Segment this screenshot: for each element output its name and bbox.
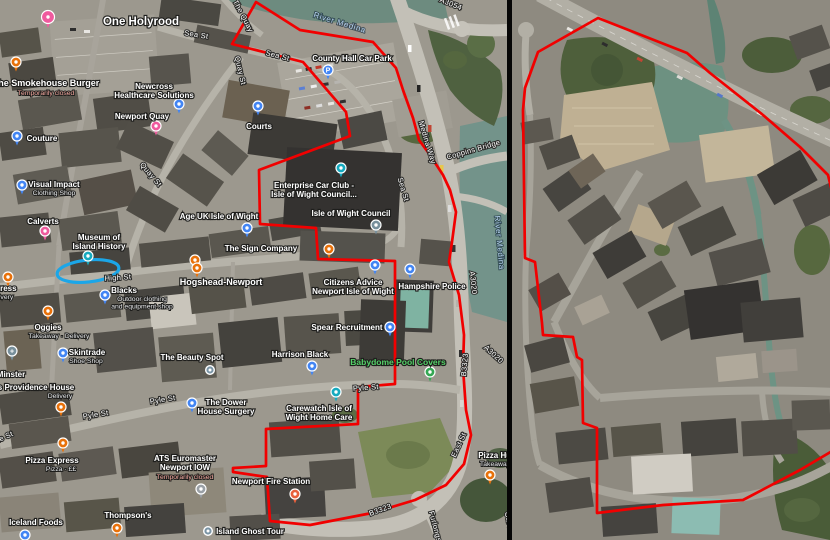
street-label: Quay St bbox=[233, 55, 248, 86]
street-label: Quay St bbox=[138, 160, 164, 189]
poi-closed-label: Temporarily closed bbox=[157, 474, 214, 481]
poi-label: The Dower bbox=[206, 398, 247, 407]
poi-harrison-black: Harrison Black bbox=[272, 350, 329, 376]
poi-pizza-hut: Pizza HutTakeaway bbox=[478, 451, 507, 485]
thompsons-pin[interactable] bbox=[112, 523, 122, 538]
poi-label: Calverts bbox=[27, 217, 59, 226]
visual-impact-pin[interactable] bbox=[17, 180, 27, 195]
poi-label: Citizens Advice bbox=[324, 278, 383, 287]
street-label: B3323 bbox=[459, 353, 470, 377]
hampshire-police-pin[interactable] bbox=[405, 264, 415, 279]
poi-label: Harrison Black bbox=[272, 350, 329, 359]
left-map-annotations: River MedinaRiver MedinaThe QuaySea StSe… bbox=[0, 0, 507, 540]
iow-council-pin[interactable] bbox=[371, 220, 381, 235]
poi-iow-council: Isle of Wight Council bbox=[311, 209, 390, 235]
poi-sublabel: Takeaway · Delivery bbox=[29, 333, 90, 340]
calverts-pin[interactable] bbox=[40, 226, 50, 241]
poi-county-hall-car-park: PCounty Hall Car Park bbox=[312, 54, 392, 80]
street-label: A3054 bbox=[439, 0, 464, 12]
poi-label: Newport IOW bbox=[160, 463, 211, 472]
poi-label: Island History bbox=[73, 242, 126, 251]
poi-label: Iceland Foods bbox=[9, 518, 63, 527]
poi-age-uk: Age UK Isle of Wight bbox=[180, 212, 259, 238]
blacks-pin[interactable] bbox=[100, 290, 110, 305]
boundary-outline bbox=[232, 2, 471, 525]
poi-label: House Surgery bbox=[198, 407, 255, 416]
oggies-pin[interactable] bbox=[43, 306, 53, 321]
poi-couture: Couture bbox=[12, 131, 58, 146]
poi-pizza-express: Pizza ExpressPizza · ££ bbox=[25, 438, 79, 473]
poi-thompsons: Thompson's bbox=[104, 511, 152, 538]
poi-courts: Courts bbox=[246, 101, 272, 131]
poi-hogshead-newport: Hogshead-Newport bbox=[180, 263, 263, 287]
poi-label: Pizza Express bbox=[25, 456, 79, 465]
poi-sublabel: and equipment shop bbox=[111, 304, 173, 311]
poi-label: Oggies bbox=[34, 323, 62, 332]
poi-label: One Holyrood bbox=[103, 16, 179, 28]
poi-label: The Beauty Spot bbox=[160, 353, 223, 362]
water-label: River Medina bbox=[312, 10, 367, 34]
poi-calverts: Calverts bbox=[27, 217, 59, 241]
poi-citizens-advice: Citizens AdviceNewport Isle of Wight bbox=[312, 260, 394, 296]
right-map-panel[interactable] bbox=[512, 0, 830, 540]
poi-label: Express bbox=[0, 284, 17, 293]
poi-providence-house: s Providence HouseDelivery bbox=[0, 383, 75, 417]
street-label: Pyle St bbox=[0, 429, 15, 448]
babydome-pool-covers-pin[interactable] bbox=[425, 367, 435, 382]
poi-newport-quay: Newport Quay bbox=[115, 112, 170, 136]
poi-beauty-spot: The Beauty Spot bbox=[160, 353, 223, 374]
street-label: Coppins Bridge bbox=[445, 138, 501, 162]
poi-label: The Sign Company bbox=[225, 244, 298, 253]
enterprise-car-club-pin[interactable] bbox=[336, 163, 346, 178]
poi-sublabel: Delivery bbox=[0, 294, 14, 301]
street-label: A3020 bbox=[468, 271, 479, 295]
dower-house-surgery-pin[interactable] bbox=[187, 398, 197, 413]
poi-label: Pizza Hut bbox=[478, 451, 507, 460]
poi-label: Blacks bbox=[111, 286, 137, 295]
poi-spear-recruitment: Spear Recruitment bbox=[311, 322, 395, 337]
poi-babydome-pool-covers: Babydome Pool Covers bbox=[350, 357, 446, 382]
poi-label: Hampshire Police bbox=[398, 282, 466, 291]
courts-pin[interactable] bbox=[253, 101, 263, 116]
right-map-annotations bbox=[512, 0, 830, 540]
pizza-express-pin[interactable] bbox=[58, 438, 68, 453]
poi-label: Isle of Wight Council... bbox=[271, 190, 357, 199]
street-label: Sea St bbox=[265, 48, 291, 63]
poi-one-holyrood: One Holyrood bbox=[42, 11, 180, 29]
street-label: Furlongs bbox=[427, 510, 444, 540]
age-uk-pin[interactable] bbox=[242, 223, 252, 238]
carewatch-pin[interactable] bbox=[331, 387, 341, 402]
poi-hampshire-police: Hampshire Police bbox=[398, 264, 466, 291]
poi-label: Minster bbox=[0, 370, 25, 379]
poi-express: ExpressDelivery bbox=[0, 272, 17, 301]
museum-island-history-pin[interactable] bbox=[83, 251, 93, 266]
left-map-panel[interactable]: River MedinaRiver MedinaThe QuaySea StSe… bbox=[0, 0, 507, 540]
spear-recruitment-pin[interactable] bbox=[385, 322, 395, 337]
county-hall-car-park-pin[interactable]: P bbox=[323, 65, 333, 80]
poi-iceland-foods: Iceland Foods bbox=[9, 518, 63, 540]
poi-food-poi bbox=[324, 244, 334, 259]
poi-label: ATS Euromaster bbox=[154, 454, 216, 463]
smokehouse-burger-pin[interactable] bbox=[11, 57, 21, 72]
street-label: Pyle St bbox=[82, 408, 110, 421]
street-label: B3323 bbox=[368, 501, 393, 517]
poi-carewatch: Carewatch Isle ofWight Home Care bbox=[286, 387, 353, 422]
poi-skintrade: SkintradeShoe Shop bbox=[58, 348, 106, 365]
street-label: Sea St bbox=[396, 176, 412, 202]
poi-label: Wight Home Care bbox=[286, 413, 353, 422]
boundary-outline bbox=[523, 18, 830, 513]
skintrade-pin[interactable] bbox=[58, 348, 68, 363]
poi-label: Thompson's bbox=[104, 511, 152, 520]
street-label: A3020 bbox=[482, 343, 505, 365]
food-poi-pin[interactable] bbox=[324, 244, 334, 259]
water-label: River Medina bbox=[493, 215, 507, 270]
poi-label: County Hall Car Park bbox=[312, 54, 392, 63]
newcross-healthcare-pin[interactable] bbox=[174, 99, 184, 114]
poi-label: Age UK Isle of Wight bbox=[180, 212, 259, 221]
poi-closed-label: Temporarily closed bbox=[18, 90, 75, 97]
poi-label: Island Ghost Tour bbox=[216, 527, 284, 536]
poi-label: Newcross bbox=[135, 82, 173, 91]
poi-visual-impact: Visual ImpactClothing Shop bbox=[17, 180, 80, 197]
poi-label: Newport Quay bbox=[115, 112, 170, 121]
poi-sublabel: Shoe Shop bbox=[69, 358, 103, 365]
street-label: The Quay bbox=[231, 0, 256, 34]
minster-pin[interactable]: + bbox=[7, 346, 17, 361]
poi-label: Babydome Pool Covers bbox=[350, 357, 446, 367]
poi-sublabel: Takeaway bbox=[480, 461, 507, 468]
poi-label: Isle of Wight Council bbox=[311, 209, 390, 218]
poi-enterprise-car-club: Enterprise Car Club -Isle of Wight Counc… bbox=[271, 163, 357, 199]
poi-island-ghost-tour: Island Ghost Tour bbox=[204, 527, 284, 536]
poi-label: Visual Impact bbox=[28, 180, 80, 189]
island-ghost-tour-pin[interactable] bbox=[204, 527, 213, 536]
poi-label: Enterprise Car Club - bbox=[274, 181, 354, 190]
poi-label: Carewatch Isle of bbox=[286, 404, 352, 413]
poi-label: Couture bbox=[27, 134, 58, 143]
svg-text:P: P bbox=[326, 68, 331, 75]
poi-minster: +Minster bbox=[0, 346, 25, 379]
poi-sublabel: Delivery bbox=[48, 393, 73, 400]
poi-sublabel: Pizza · ££ bbox=[46, 466, 76, 473]
street-label: Pyle St bbox=[353, 382, 380, 393]
poi-label: Hogshead-Newport bbox=[180, 277, 263, 287]
poi-label: Courts bbox=[246, 122, 272, 131]
couture-pin[interactable] bbox=[12, 131, 22, 146]
poi-blacks: BlacksOutdoor clothingand equipment shop bbox=[100, 286, 173, 311]
newport-fire-station-pin[interactable] bbox=[290, 489, 300, 504]
poi-sublabel: Outdoor clothing bbox=[117, 296, 167, 303]
hogshead-newport-pin[interactable] bbox=[192, 263, 202, 278]
iceland-foods-pin[interactable] bbox=[20, 530, 30, 540]
poi-label: Newport Isle of Wight bbox=[312, 287, 394, 296]
ats-euromaster-pin[interactable] bbox=[196, 484, 206, 499]
map-stage: River MedinaRiver MedinaThe QuaySea StSe… bbox=[0, 0, 830, 540]
poi-newport-fire-station: Newport Fire Station bbox=[232, 477, 310, 504]
poi-label: The Smokehouse Burger bbox=[0, 78, 100, 88]
poi-label: Spear Recruitment bbox=[311, 323, 382, 332]
newport-quay-pin[interactable] bbox=[151, 121, 161, 136]
citizens-advice-pin[interactable] bbox=[370, 260, 380, 275]
street-label: Sea St bbox=[184, 28, 210, 41]
harrison-black-pin[interactable] bbox=[307, 361, 317, 376]
providence-house-pin[interactable] bbox=[56, 402, 66, 417]
beauty-spot-pin[interactable] bbox=[206, 366, 215, 375]
street-label: High St bbox=[104, 272, 132, 283]
poi-label: Newport Fire Station bbox=[232, 477, 310, 486]
poi-label: Healthcare Solutions bbox=[114, 91, 194, 100]
poi-dower-house-surgery: The DowerHouse Surgery bbox=[187, 398, 255, 416]
poi-oggies: OggiesTakeaway · Delivery bbox=[29, 306, 90, 340]
poi-label: Museum of bbox=[78, 233, 121, 242]
poi-smokehouse-burger: The Smokehouse BurgerTemporarily closed bbox=[0, 57, 100, 97]
poi-sublabel: Clothing Shop bbox=[33, 190, 76, 197]
svg-text:+: + bbox=[10, 349, 14, 356]
poi-newcross-healthcare: NewcrossHealthcare Solutions bbox=[114, 82, 194, 114]
poi-sign-company: The Sign Company bbox=[190, 244, 298, 270]
street-label: Pyle St bbox=[149, 393, 177, 406]
one-holyrood-pin[interactable] bbox=[42, 11, 55, 29]
pizza-hut-pin[interactable] bbox=[485, 470, 495, 485]
poi-label: s Providence House bbox=[0, 383, 75, 392]
poi-label: Skintrade bbox=[69, 348, 106, 357]
poi-ats-euromaster: ATS EuromasterNewport IOWTemporarily clo… bbox=[154, 454, 216, 499]
